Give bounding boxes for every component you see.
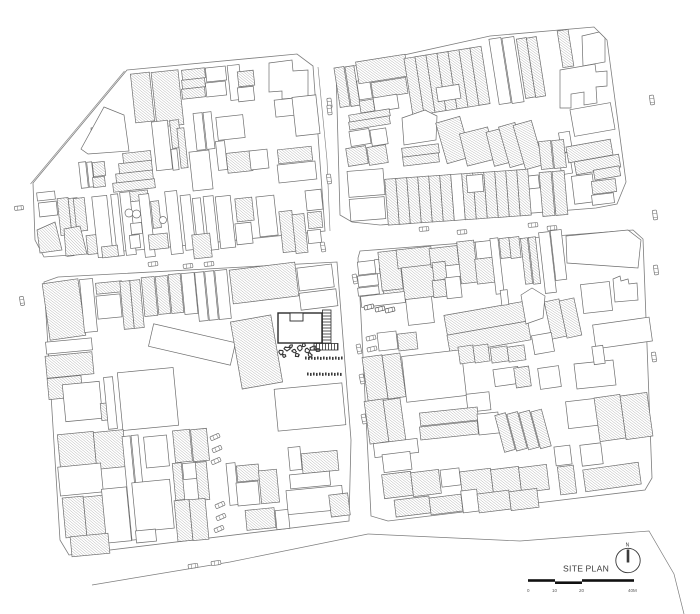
svg-text:20: 20: [579, 588, 585, 593]
svg-text:SITE: SITE: [563, 564, 583, 574]
svg-text:PLAN: PLAN: [586, 564, 610, 574]
svg-text:10: 10: [552, 588, 558, 593]
svg-text:N: N: [626, 543, 630, 549]
svg-text:40M: 40M: [628, 588, 637, 593]
